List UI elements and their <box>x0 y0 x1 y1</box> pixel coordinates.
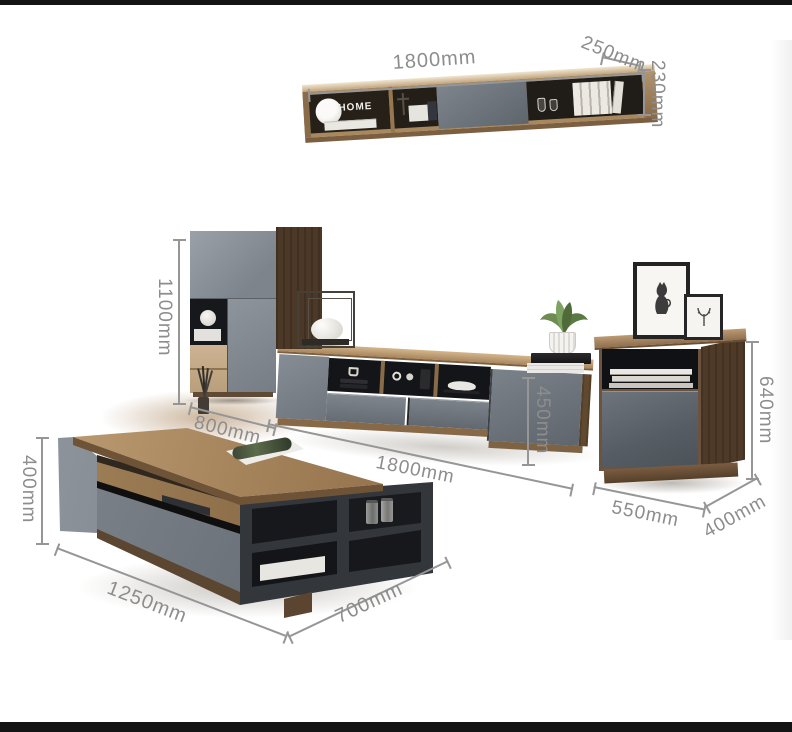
dim-tvstand-height-line <box>527 377 529 466</box>
decor-stone-vase <box>311 318 343 341</box>
dim-sidecab-depth-label: 400mm <box>700 491 770 543</box>
decor-white-box <box>408 105 429 122</box>
decor-potted-plant <box>538 298 590 358</box>
decor-metal-cube <box>297 291 355 348</box>
decor-white-books <box>527 363 584 373</box>
dim-shelf-height-line <box>643 69 645 116</box>
shelf-divider-b <box>433 364 439 397</box>
decor-dark-canister <box>420 369 431 390</box>
dim-table-height-line <box>41 437 43 545</box>
sidecab-drawer <box>602 391 698 468</box>
dim-sidecab-height-line <box>751 341 753 480</box>
cabinet-door-bottom <box>227 299 276 393</box>
decor-white-stack <box>324 119 376 131</box>
dim-cabinet-height-label: 1100mm <box>153 278 175 357</box>
shelf-sliding-panel <box>436 80 528 129</box>
decor-book-leaning <box>612 81 624 114</box>
dim-shelf-height-label: 230mm <box>646 60 668 128</box>
dim-tvstand-height-label: 450mm <box>531 386 553 454</box>
sidecab-open-shelf <box>602 349 698 389</box>
wall-shade-right <box>770 40 792 640</box>
shelf-compartment-3 <box>526 75 644 121</box>
decor-plate-stack <box>340 379 368 385</box>
side-cabinet-body <box>599 349 701 471</box>
decor-small-cup <box>348 367 358 377</box>
decor-magazine-stack-1 <box>610 369 692 375</box>
antler-art <box>693 306 715 328</box>
cabinet-door-top <box>190 231 276 299</box>
decor-glass-1 <box>537 98 546 112</box>
decor-magazine-stack-3 <box>609 383 693 388</box>
decor-glass-2 <box>549 99 558 111</box>
decor-cup-pair <box>392 371 401 380</box>
cat-art <box>650 280 674 320</box>
side-cabinet-side-panel <box>701 338 745 469</box>
plant-pot <box>549 332 576 354</box>
decor-picture-frame-large <box>633 262 690 339</box>
cabinet-open-niche <box>190 299 227 345</box>
decor-books-upright <box>572 81 612 116</box>
top-frame-bar <box>0 0 792 5</box>
tvstand-door-left <box>276 354 329 421</box>
dim-sidecab-height-label: 640mm <box>754 376 776 444</box>
decor-home-sign: HOME <box>338 101 373 114</box>
decor-can-1 <box>366 500 378 524</box>
plant-leaves <box>538 298 590 336</box>
decor-dark-box <box>427 101 437 121</box>
product-photo-scene: HOME <box>0 0 792 732</box>
decor-magazine-stack-2 <box>612 376 690 382</box>
home-sign-text: HOME <box>338 101 373 114</box>
dim-shelf-width-label: 1800mm <box>392 46 477 75</box>
decor-round-vase <box>200 310 216 326</box>
dim-cabinet-height-line <box>178 239 180 405</box>
decor-figurine-arms <box>397 98 409 101</box>
decor-white-tray <box>194 329 221 341</box>
bottom-frame-bar <box>0 722 792 732</box>
decor-picture-frame-small <box>684 294 723 340</box>
decor-figurine <box>402 93 405 115</box>
shelf-divider-a <box>379 361 385 394</box>
shelf-compartment-1: HOME <box>309 90 391 134</box>
shelf-compartment-2 <box>392 87 438 129</box>
decor-can-2 <box>381 498 393 522</box>
dim-table-height-label: 400mm <box>17 455 39 523</box>
cube-base <box>302 339 349 345</box>
decor-bowl-plate <box>443 389 479 394</box>
